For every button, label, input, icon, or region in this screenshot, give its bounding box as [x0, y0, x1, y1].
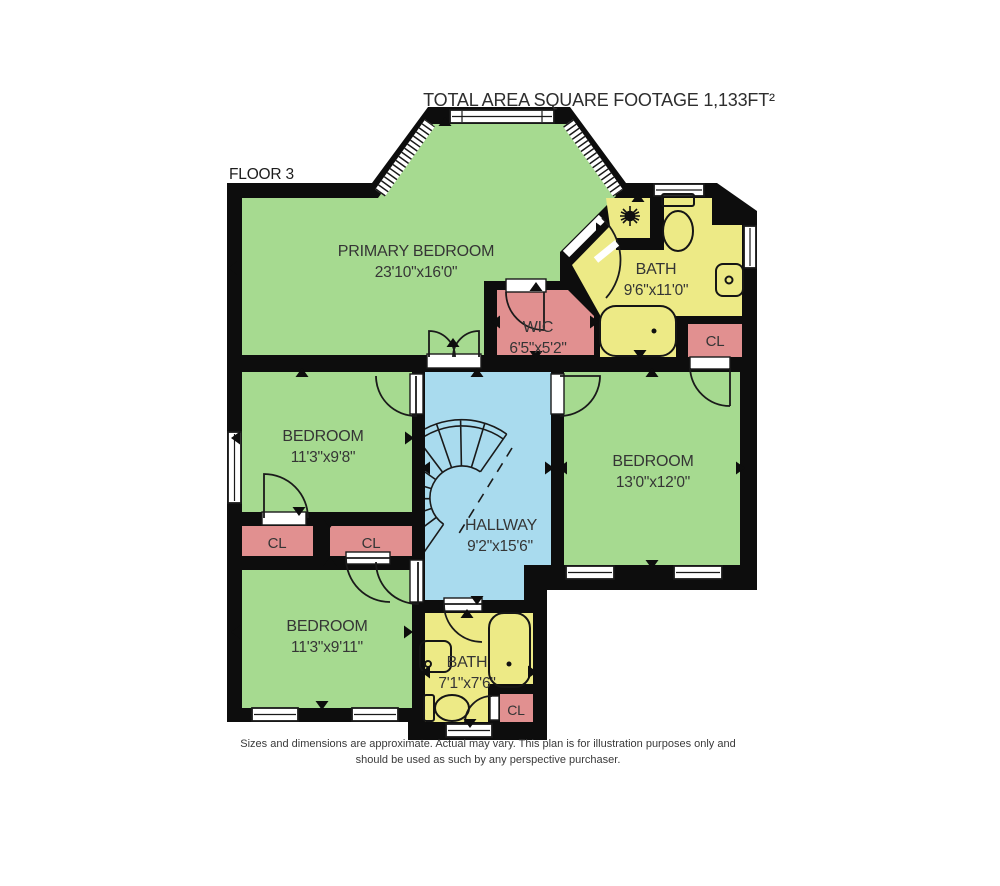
label-primary-bedroom: PRIMARY BEDROOM	[338, 243, 494, 260]
dims-bedroom-right: 13'0"x12'0"	[616, 474, 690, 491]
label-bath-upper: BATH	[636, 261, 677, 278]
bathtub-upper-drain	[652, 329, 657, 334]
floor-plan-canvas: TOTAL AREA SQUARE FOOTAGE 1,133FT² FLOOR…	[0, 0, 1000, 886]
label-closet-lower: CL	[507, 702, 525, 718]
shower-fan-icon	[620, 206, 640, 226]
label-bath-lower: BATH	[447, 654, 488, 671]
dims-bedroom-lower-left: 11'3"x9'11"	[291, 639, 363, 656]
disclaimer-line-1: Sizes and dimensions are approximate. Ac…	[240, 738, 735, 750]
dims-wic: 6'5"x5'2"	[509, 340, 566, 357]
label-bedroom-lower-left: BEDROOM	[286, 618, 367, 635]
doorway-bedroom-right	[551, 374, 564, 414]
door-panel-closet-lower	[490, 696, 499, 720]
dims-primary-bedroom: 23'10"x16'0"	[375, 264, 458, 281]
label-hallway: HALLWAY	[465, 517, 538, 534]
floor-label: FLOOR 3	[229, 166, 294, 183]
label-closet-upper-right: CL	[706, 333, 725, 350]
dims-bath-upper: 9'6"x11'0"	[624, 282, 689, 299]
dims-bedroom-mid-left: 11'3"x9'8"	[291, 449, 356, 466]
floor-plan-page: TOTAL AREA SQUARE FOOTAGE 1,133FT² FLOOR…	[0, 0, 1000, 886]
label-bedroom-right: BEDROOM	[612, 453, 693, 470]
doorway-bedroom-lower	[410, 560, 423, 602]
label-closet-left: CL	[268, 535, 287, 552]
doorway-primary-double	[427, 354, 481, 368]
dims-hallway: 9'2"x15'6"	[467, 538, 533, 555]
wall-shower-bottom	[616, 238, 664, 250]
label-wic: WIC	[523, 319, 554, 336]
label-closet-mid: CL	[362, 535, 381, 552]
bathtub-lower-drain	[507, 662, 512, 667]
dims-bath-lower: 7'1"x7'6"	[438, 675, 495, 692]
doorway-closet-upper-right	[690, 357, 730, 369]
label-bedroom-mid-left: BEDROOM	[282, 428, 363, 445]
page-title: TOTAL AREA SQUARE FOOTAGE 1,133FT²	[423, 90, 775, 110]
disclaimer-line-2: should be used as such by any perspectiv…	[356, 754, 621, 766]
